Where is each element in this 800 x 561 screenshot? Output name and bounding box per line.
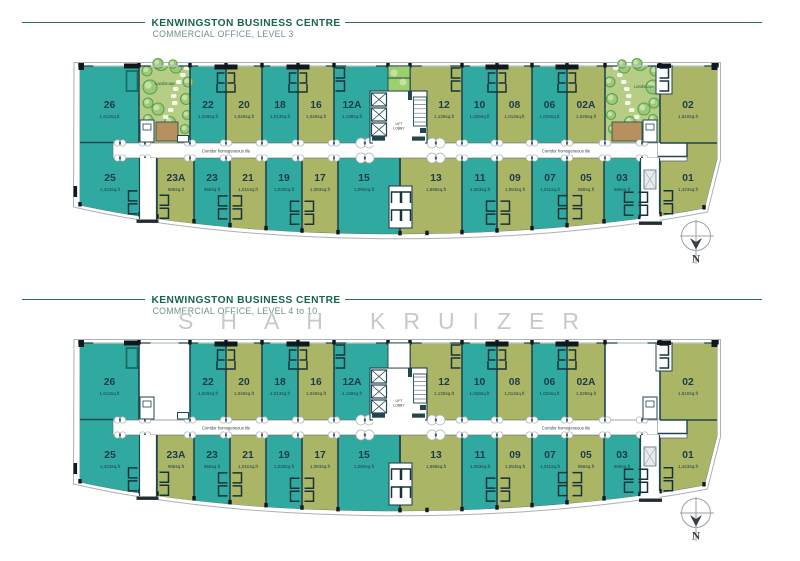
svg-text:07: 07: [544, 450, 556, 461]
svg-text:1,053sq.ft: 1,053sq.ft: [505, 464, 526, 469]
svg-text:LOBBY: LOBBY: [393, 404, 405, 408]
svg-text:02: 02: [682, 100, 694, 111]
svg-text:1,026sq.ft: 1,026sq.ft: [234, 391, 255, 396]
svg-text:1,423sq.ft: 1,423sq.ft: [678, 187, 699, 192]
svg-text:1,028sq.ft: 1,028sq.ft: [576, 114, 597, 119]
svg-text:22: 22: [202, 377, 214, 388]
svg-text:15: 15: [358, 173, 370, 184]
svg-text:1,138sq.ft: 1,138sq.ft: [342, 391, 363, 396]
svg-text:12A: 12A: [343, 100, 362, 111]
svg-text:Landscape: Landscape: [155, 81, 176, 86]
svg-text:21: 21: [242, 173, 254, 184]
svg-text:1,083sq.ft: 1,083sq.ft: [470, 187, 491, 192]
svg-text:958sq.ft: 958sq.ft: [578, 187, 595, 192]
svg-text:1,013sq.ft: 1,013sq.ft: [270, 391, 291, 396]
svg-text:1,012sq.ft: 1,012sq.ft: [504, 391, 525, 396]
svg-text:26: 26: [104, 377, 116, 388]
svg-text:1,610sq.ft: 1,610sq.ft: [678, 391, 699, 396]
svg-text:01: 01: [682, 173, 694, 184]
svg-text:1,898sq.ft: 1,898sq.ft: [426, 464, 447, 469]
svg-text:KENWINGSTON BUSINESS CENTRE: KENWINGSTON BUSINESS CENTRE: [152, 295, 341, 306]
svg-text:19: 19: [278, 450, 290, 461]
svg-text:1,135sq.ft: 1,135sq.ft: [434, 391, 455, 396]
svg-text:1,011sq.ft: 1,011sq.ft: [540, 464, 561, 469]
svg-text:Corridor homogeneous tile: Corridor homogeneous tile: [542, 149, 591, 154]
svg-text:1,090sq.ft: 1,090sq.ft: [354, 464, 375, 469]
svg-text:1,613sq.ft: 1,613sq.ft: [99, 114, 120, 119]
svg-text:SHAH: SHAH: [178, 308, 350, 334]
svg-text:06: 06: [544, 377, 556, 388]
svg-text:KRUIZER: KRUIZER: [370, 308, 597, 334]
svg-text:Corridor homogeneous tile: Corridor homogeneous tile: [202, 149, 251, 154]
svg-text:1,898sq.ft: 1,898sq.ft: [426, 187, 447, 192]
svg-text:01: 01: [682, 450, 694, 461]
svg-text:02: 02: [682, 377, 694, 388]
svg-text:08: 08: [509, 100, 521, 111]
svg-text:19: 19: [278, 173, 290, 184]
svg-text:1,026sq.ft: 1,026sq.ft: [306, 391, 327, 396]
svg-text:02A: 02A: [577, 377, 596, 388]
svg-text:09: 09: [509, 450, 521, 461]
svg-text:13: 13: [430, 450, 442, 461]
svg-text:1,028sq.ft: 1,028sq.ft: [576, 391, 597, 396]
svg-text:18: 18: [274, 377, 286, 388]
svg-text:1,033sq.ft: 1,033sq.ft: [274, 464, 295, 469]
svg-text:05: 05: [580, 173, 592, 184]
svg-text:1,026sq.ft: 1,026sq.ft: [306, 114, 327, 119]
svg-text:23: 23: [206, 450, 218, 461]
svg-text:1,011sq.ft: 1,011sq.ft: [238, 187, 259, 192]
svg-text:16: 16: [310, 377, 322, 388]
svg-text:02A: 02A: [577, 100, 596, 111]
svg-text:COMMERCIAL OFFICE, LEVEL 3: COMMERCIAL OFFICE, LEVEL 3: [153, 29, 294, 39]
svg-text:20: 20: [238, 377, 250, 388]
svg-text:958sq.ft: 958sq.ft: [204, 187, 221, 192]
svg-text:03: 03: [616, 173, 628, 184]
svg-text:10: 10: [474, 377, 486, 388]
svg-text:1,026sq.ft: 1,026sq.ft: [198, 114, 219, 119]
svg-text:1,423sq.ft: 1,423sq.ft: [100, 464, 121, 469]
svg-text:05: 05: [580, 450, 592, 461]
svg-text:1,026sq.ft: 1,026sq.ft: [198, 391, 219, 396]
svg-text:LIFT: LIFT: [396, 399, 403, 403]
svg-text:1,090sq.ft: 1,090sq.ft: [354, 187, 375, 192]
svg-text:1,610sq.ft: 1,610sq.ft: [678, 114, 699, 119]
svg-text:26: 26: [104, 100, 116, 111]
svg-text:1,613sq.ft: 1,613sq.ft: [99, 391, 120, 396]
svg-text:1,083sq.ft: 1,083sq.ft: [310, 464, 331, 469]
svg-text:KENWINGSTON BUSINESS CENTRE: KENWINGSTON BUSINESS CENTRE: [152, 18, 341, 29]
svg-text:Corridor homogeneous tile: Corridor homogeneous tile: [542, 426, 591, 431]
svg-text:968sq.ft: 968sq.ft: [168, 187, 185, 192]
svg-text:1,033sq.ft: 1,033sq.ft: [274, 187, 295, 192]
svg-text:12: 12: [438, 100, 450, 111]
svg-text:1,011sq.ft: 1,011sq.ft: [238, 464, 259, 469]
svg-text:16: 16: [310, 100, 322, 111]
svg-text:968sq.ft: 968sq.ft: [614, 187, 631, 192]
svg-text:10: 10: [474, 100, 486, 111]
svg-text:1,423sq.ft: 1,423sq.ft: [678, 464, 699, 469]
svg-text:1,053sq.ft: 1,053sq.ft: [505, 187, 526, 192]
svg-text:15: 15: [358, 450, 370, 461]
svg-text:1,012sq.ft: 1,012sq.ft: [504, 114, 525, 119]
svg-text:1,083sq.ft: 1,083sq.ft: [470, 464, 491, 469]
svg-text:1,026sq.ft: 1,026sq.ft: [234, 114, 255, 119]
svg-text:Landscape: Landscape: [634, 84, 655, 89]
svg-text:03: 03: [616, 450, 628, 461]
svg-text:06: 06: [544, 100, 556, 111]
svg-text:11: 11: [475, 450, 486, 461]
svg-text:968sq.ft: 968sq.ft: [614, 464, 631, 469]
svg-text:22: 22: [202, 100, 214, 111]
svg-text:23A: 23A: [167, 173, 186, 184]
svg-text:23A: 23A: [167, 450, 186, 461]
svg-text:1,138sq.ft: 1,138sq.ft: [342, 114, 363, 119]
svg-text:12: 12: [438, 377, 450, 388]
svg-text:958sq.ft: 958sq.ft: [204, 464, 221, 469]
svg-text:1,013sq.ft: 1,013sq.ft: [270, 114, 291, 119]
svg-text:LOBBY: LOBBY: [393, 127, 405, 131]
svg-text:18: 18: [274, 100, 286, 111]
svg-text:11: 11: [475, 173, 486, 184]
svg-text:20: 20: [238, 100, 250, 111]
svg-text:08: 08: [509, 377, 521, 388]
svg-text:1,026sq.ft: 1,026sq.ft: [539, 114, 560, 119]
svg-text:23: 23: [206, 173, 218, 184]
svg-text:07: 07: [544, 173, 556, 184]
svg-text:25: 25: [104, 173, 116, 184]
svg-text:LIFT: LIFT: [396, 122, 403, 126]
svg-text:25: 25: [104, 450, 116, 461]
svg-text:1,083sq.ft: 1,083sq.ft: [310, 187, 331, 192]
svg-text:968sq.ft: 968sq.ft: [168, 464, 185, 469]
svg-text:N: N: [692, 254, 701, 266]
svg-text:17: 17: [314, 173, 326, 184]
svg-text:17: 17: [314, 450, 326, 461]
svg-text:09: 09: [509, 173, 521, 184]
svg-text:1,026sq.ft: 1,026sq.ft: [469, 114, 490, 119]
svg-text:Corridor homogeneous tile: Corridor homogeneous tile: [202, 426, 251, 431]
svg-text:1,423sq.ft: 1,423sq.ft: [100, 187, 121, 192]
svg-text:N: N: [692, 531, 701, 543]
svg-text:1,011sq.ft: 1,011sq.ft: [540, 187, 561, 192]
svg-text:21: 21: [242, 450, 254, 461]
svg-text:1,135sq.ft: 1,135sq.ft: [434, 114, 455, 119]
svg-text:958sq.ft: 958sq.ft: [578, 464, 595, 469]
svg-text:1,026sq.ft: 1,026sq.ft: [539, 391, 560, 396]
svg-text:13: 13: [430, 173, 442, 184]
svg-text:1,026sq.ft: 1,026sq.ft: [469, 391, 490, 396]
svg-text:12A: 12A: [343, 377, 362, 388]
